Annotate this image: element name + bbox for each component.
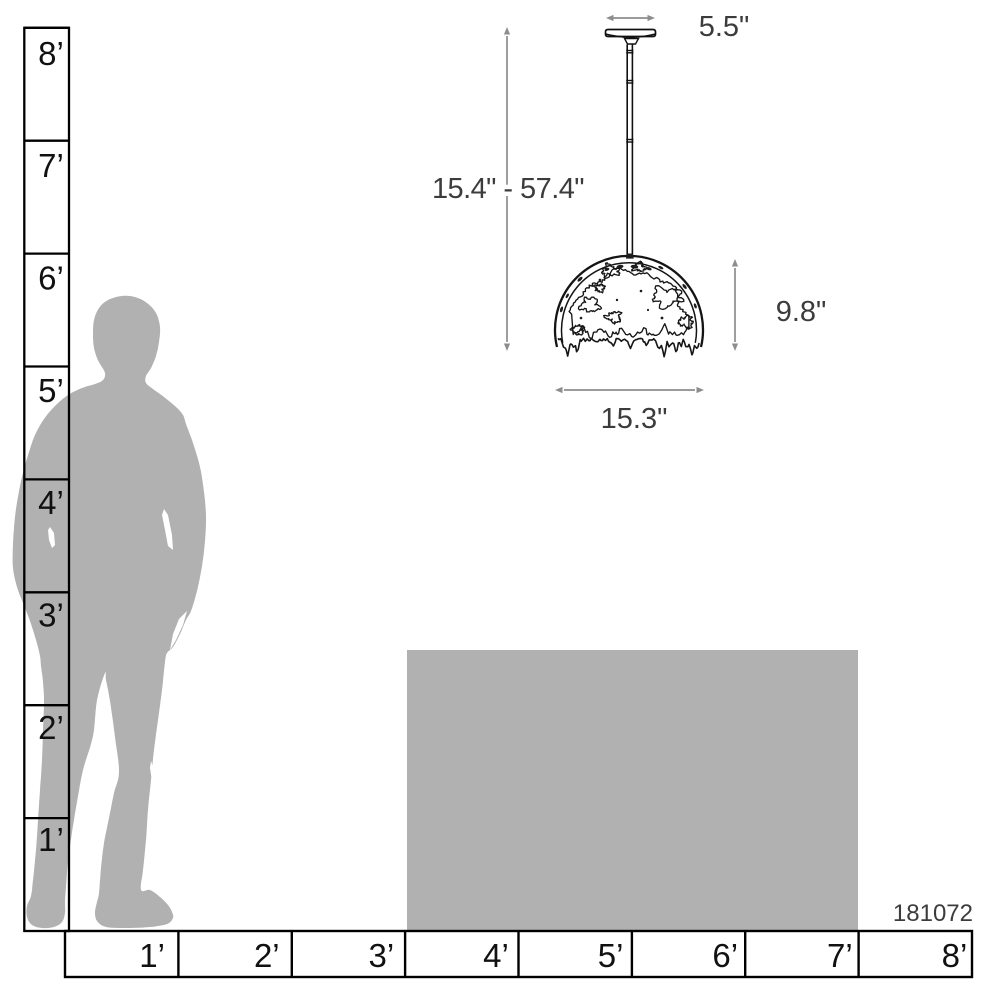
svg-text:1’: 1’ (38, 821, 64, 858)
svg-text:7’: 7’ (38, 147, 64, 184)
svg-text:3’: 3’ (369, 937, 395, 974)
svg-text:8’: 8’ (38, 35, 64, 72)
svg-text:7’: 7’ (827, 937, 853, 974)
svg-text:8’: 8’ (942, 937, 968, 974)
svg-text:181072: 181072 (893, 900, 973, 927)
svg-text:15.4" - 57.4": 15.4" - 57.4" (432, 173, 584, 205)
svg-text:6’: 6’ (712, 937, 738, 974)
svg-text:5’: 5’ (598, 937, 624, 974)
svg-text:5.5": 5.5" (699, 11, 750, 43)
svg-text:15.3": 15.3" (601, 403, 668, 435)
svg-text:4’: 4’ (483, 937, 509, 974)
svg-text:4’: 4’ (38, 484, 64, 521)
svg-text:3’: 3’ (38, 597, 64, 634)
svg-text:5’: 5’ (38, 372, 64, 409)
svg-text:2’: 2’ (38, 709, 64, 746)
svg-text:2’: 2’ (254, 937, 280, 974)
svg-text:9.8": 9.8" (776, 296, 827, 328)
svg-text:6’: 6’ (38, 260, 64, 297)
svg-text:1’: 1’ (139, 937, 165, 974)
